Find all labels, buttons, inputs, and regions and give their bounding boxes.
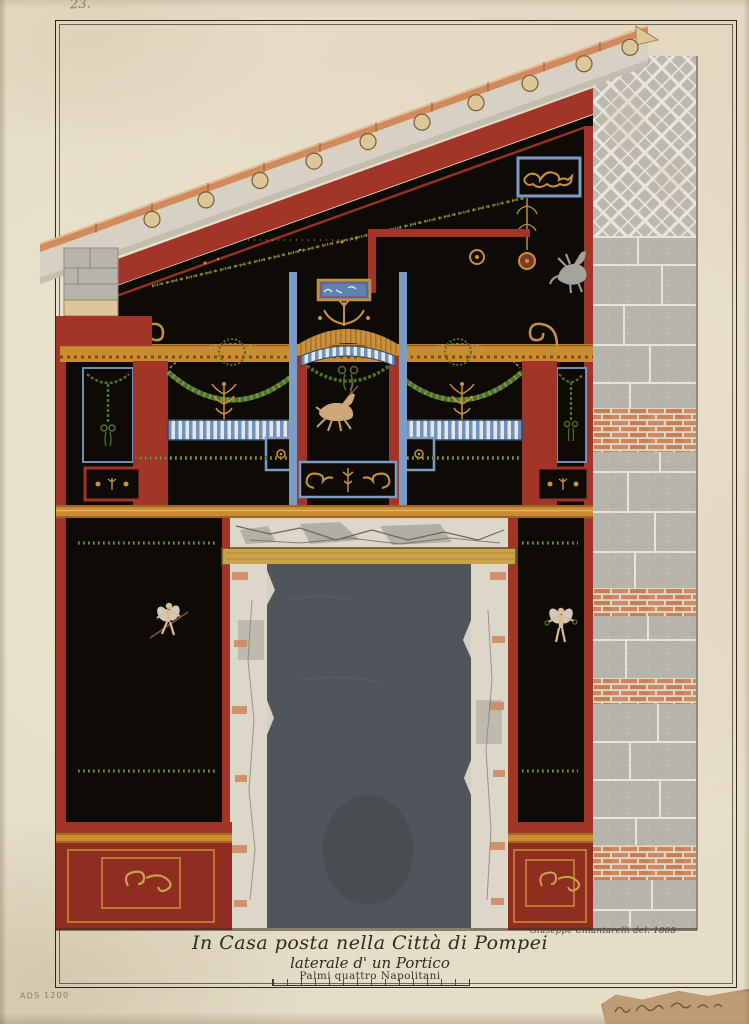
door-lintel	[222, 548, 516, 565]
predella-box-center	[300, 462, 396, 497]
door-leaf	[267, 564, 471, 928]
dado-right	[508, 843, 593, 930]
artist-signature: Giuseppe Chiantarelli del. 1808	[498, 926, 708, 936]
door-jamb-left	[230, 564, 270, 930]
stone-pilaster	[593, 56, 697, 930]
lower-panel-right	[518, 518, 584, 822]
corner-number: 23.	[70, 0, 91, 13]
garland-chain-panel-left	[83, 368, 133, 462]
predella-box-right	[538, 468, 588, 500]
gold-band	[56, 505, 593, 518]
sea-serpent-panel	[518, 158, 580, 196]
dado-left	[56, 843, 232, 930]
archive-mark: ADS 1200	[20, 991, 69, 1001]
garland-chain-panel-right	[557, 368, 586, 462]
rosette-square-right	[404, 438, 434, 470]
pinax-picture	[318, 280, 370, 300]
doorway	[222, 518, 516, 930]
reticulate-masonry	[593, 56, 697, 237]
scanned-plate-page: 23. In Casa posta nella Città di Pompei …	[0, 0, 749, 1024]
predella-box-left	[85, 468, 140, 500]
cracked-plaster-band	[230, 518, 508, 548]
scale-bar	[272, 979, 470, 986]
pompeii-wall-elevation	[0, 0, 749, 1024]
lower-panel-left	[66, 518, 222, 822]
